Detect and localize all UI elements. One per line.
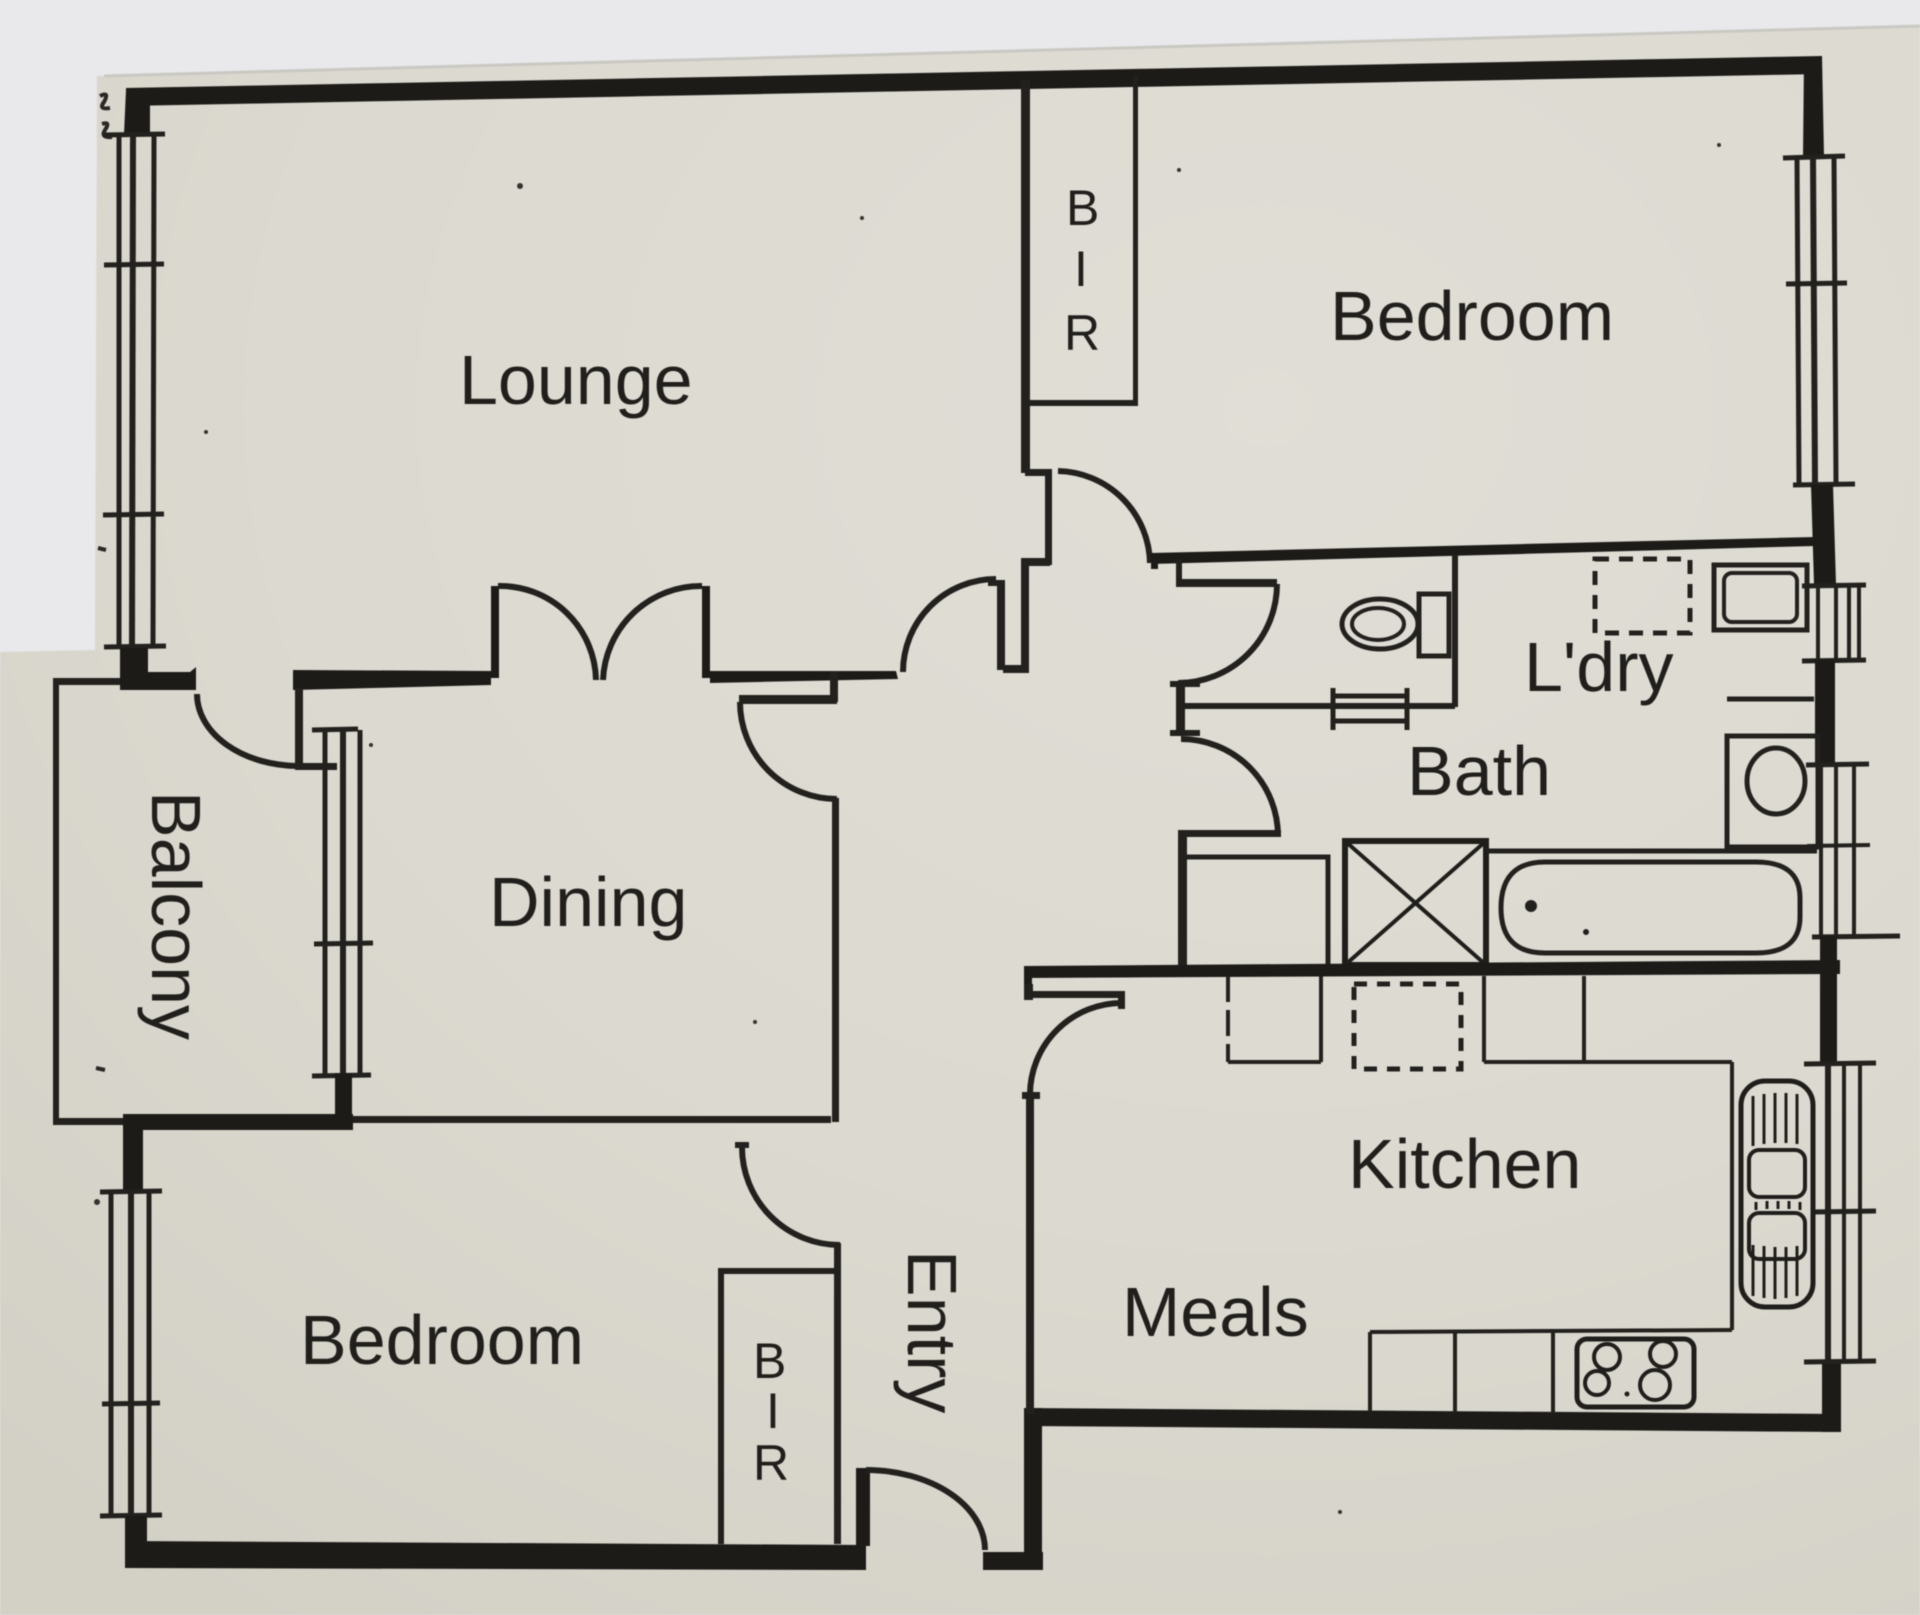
svg-text:B: B	[753, 1333, 786, 1389]
svg-text:R: R	[1064, 305, 1100, 361]
svg-text:I: I	[766, 1383, 780, 1439]
svg-text:L'dry: L'dry	[1524, 628, 1674, 706]
svg-text:R: R	[753, 1435, 789, 1491]
svg-text:Bedroom: Bedroom	[300, 1301, 584, 1379]
svg-text:Dining: Dining	[489, 863, 687, 941]
svg-text:Bath: Bath	[1407, 732, 1551, 810]
svg-text:Kitchen: Kitchen	[1348, 1125, 1581, 1203]
svg-text:Bedroom: Bedroom	[1330, 277, 1614, 355]
svg-text:Lounge: Lounge	[459, 341, 693, 419]
svg-text:I: I	[1074, 241, 1088, 297]
svg-text:Meals: Meals	[1122, 1273, 1309, 1351]
svg-text:Entry: Entry	[893, 1250, 971, 1413]
svg-text:B: B	[1066, 180, 1099, 236]
svg-text:Balcony: Balcony	[137, 791, 215, 1040]
